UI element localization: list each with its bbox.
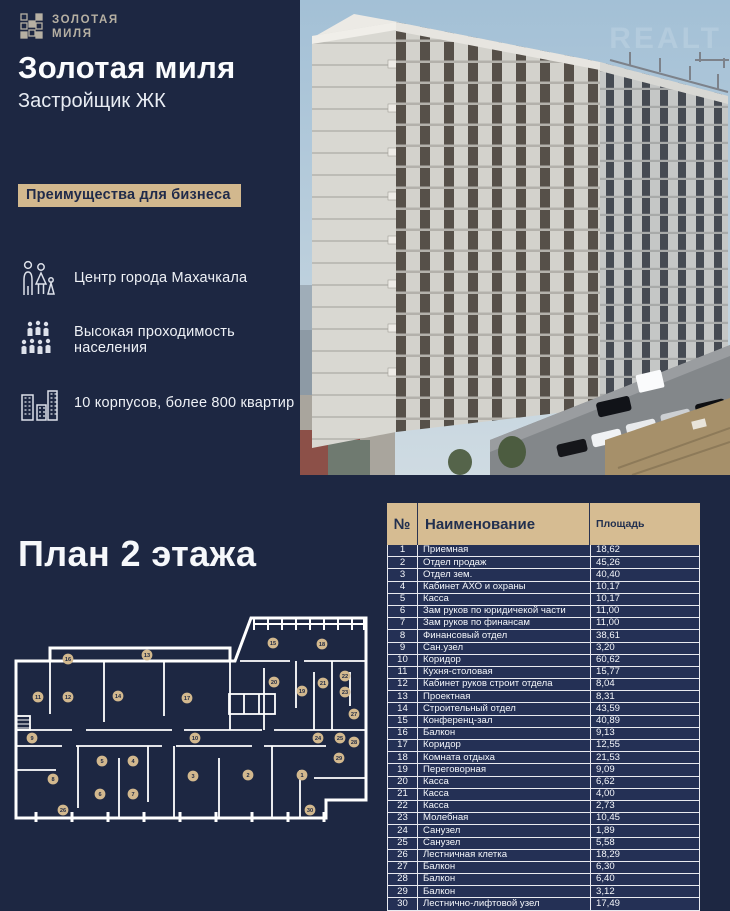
c-name: Комната отдыха	[418, 752, 591, 763]
c-name: Санузел	[418, 825, 591, 836]
floor-plan: 1613151811121417201921222391024252728298…	[14, 610, 370, 826]
c-area: 10,17	[591, 594, 699, 605]
table-row: 7Зам руков по финансам11,00	[387, 618, 700, 630]
c-num: 21	[388, 789, 418, 800]
c-area: 6,62	[591, 777, 699, 788]
room-marker-number: 7	[131, 792, 134, 798]
logo-line2: МИЛЯ	[52, 27, 119, 41]
table-row: 30Лестнично-лифтовой узел17,49	[387, 898, 700, 910]
mosaic-grid-icon	[20, 13, 44, 41]
room-marker-number: 14	[115, 694, 122, 700]
c-area: 38,61	[591, 630, 699, 641]
table-row: 29Балкон3,12	[387, 886, 700, 898]
room-marker-number: 30	[307, 808, 313, 814]
page-title: Золотая миля	[18, 50, 236, 86]
c-name: Касса	[418, 777, 591, 788]
c-num: 16	[388, 728, 418, 739]
feature-city-center: Центр города Махачкала	[20, 258, 247, 298]
room-marker-number: 13	[144, 653, 150, 659]
c-area: 8,31	[591, 691, 699, 702]
logo-line1: ЗОЛОТАЯ	[52, 13, 119, 27]
table-row: 18Комната отдыха21,53	[387, 752, 700, 764]
c-num: 5	[388, 594, 418, 605]
room-marker-number: 2	[246, 773, 249, 779]
c-area: 9,13	[591, 728, 699, 739]
table-row: 28Балкон6,40	[387, 874, 700, 886]
c-num: 25	[388, 838, 418, 849]
room-marker-number: 11	[35, 695, 41, 701]
buildings-icon	[20, 383, 58, 423]
room-marker-number: 24	[315, 736, 322, 742]
table-row: 27Балкон6,30	[387, 862, 700, 874]
c-name: Кабинет АХО и охраны	[418, 582, 591, 593]
c-area: 3,20	[591, 643, 699, 654]
feature-label: Высокая проходимость населения	[74, 324, 300, 356]
c-area: 43,59	[591, 703, 699, 714]
room-marker-number: 17	[184, 696, 190, 702]
c-num: 2	[388, 557, 418, 568]
c-num: 3	[388, 569, 418, 580]
c-name: Кабинет руков строит отдела	[418, 679, 591, 690]
c-name: Балкон	[418, 862, 591, 873]
building-photo-art	[300, 0, 730, 475]
c-num: 4	[388, 582, 418, 593]
c-area: 4,00	[591, 789, 699, 800]
c-num: 14	[388, 703, 418, 714]
table-row: 13Проектная8,31	[387, 691, 700, 703]
c-num: 30	[388, 898, 418, 909]
table-row: 19Переговорная9,09	[387, 764, 700, 776]
c-num: 20	[388, 777, 418, 788]
room-marker-number: 27	[351, 712, 357, 718]
c-area: 6,40	[591, 874, 699, 885]
room-marker-number: 19	[299, 689, 305, 695]
room-marker-number: 10	[192, 736, 198, 742]
table-row: 2Отдел продаж45,26	[387, 557, 700, 569]
table-row: 26Лестничная клетка18,29	[387, 850, 700, 862]
table-row: 10Коридор60,62	[387, 655, 700, 667]
room-marker-number: 22	[342, 674, 348, 680]
c-num: 1	[388, 545, 418, 556]
room-marker-number: 25	[337, 736, 343, 742]
col-name-header: Наименование	[418, 503, 590, 545]
c-name: Зам руков по финансам	[418, 618, 591, 629]
c-num: 22	[388, 801, 418, 812]
room-marker-number: 23	[342, 690, 348, 696]
feature-buildings: 10 корпусов, более 800 квартир	[20, 383, 294, 423]
room-marker-number: 1	[300, 773, 303, 779]
col-number-header: №	[387, 503, 418, 545]
room-marker-number: 21	[320, 681, 326, 687]
c-num: 28	[388, 874, 418, 885]
c-num: 12	[388, 679, 418, 690]
c-name: Лестнично-лифтовой узел	[418, 898, 591, 909]
family-icon	[20, 258, 58, 298]
table-row: 20Касса6,62	[387, 777, 700, 789]
c-num: 10	[388, 655, 418, 666]
c-name: Приемная	[418, 545, 591, 556]
table-row: 21Касса4,00	[387, 789, 700, 801]
logo: ЗОЛОТАЯ МИЛЯ	[20, 13, 119, 42]
c-name: Финансовый отдел	[418, 630, 591, 641]
c-name: Коридор	[418, 655, 591, 666]
c-num: 19	[388, 764, 418, 775]
c-num: 26	[388, 850, 418, 861]
benefits-badge: Преимущества для бизнеса	[18, 184, 241, 207]
room-marker-number: 20	[271, 680, 277, 686]
c-area: 1,89	[591, 825, 699, 836]
c-num: 11	[388, 667, 418, 678]
table-row: 4Кабинет АХО и охраны10,17	[387, 582, 700, 594]
c-name: Отдел зем.	[418, 569, 591, 580]
table-body: 1Приемная18,622Отдел продаж45,263Отдел з…	[387, 545, 700, 911]
table-row: 14Строительный отдел43,59	[387, 703, 700, 715]
c-area: 45,26	[591, 557, 699, 568]
c-num: 9	[388, 643, 418, 654]
room-marker-number: 29	[336, 756, 342, 762]
c-name: Отдел продаж	[418, 557, 591, 568]
table-row: 9Сан.узел3,20	[387, 643, 700, 655]
table-row: 12Кабинет руков строит отдела8,04	[387, 679, 700, 691]
c-name: Коридор	[418, 740, 591, 751]
c-num: 15	[388, 716, 418, 727]
c-num: 18	[388, 752, 418, 763]
room-area-table: № Наименование Площадь 1Приемная18,622От…	[387, 503, 700, 911]
page-subtitle: Застройщик ЖК	[18, 90, 166, 113]
c-area: 60,62	[591, 655, 699, 666]
table-row: 25Санузел5,58	[387, 838, 700, 850]
photo-watermark: REALT	[609, 22, 722, 56]
c-name: Переговорная	[418, 764, 591, 775]
table-row: 23Молебная10,45	[387, 813, 700, 825]
c-area: 18,62	[591, 545, 699, 556]
table-row: 8Финансовый отдел38,61	[387, 630, 700, 642]
c-name: Касса	[418, 594, 591, 605]
table-row: 24Санузел1,89	[387, 825, 700, 837]
c-area: 10,17	[591, 582, 699, 593]
c-name: Сан.узел	[418, 643, 591, 654]
c-area: 40,89	[591, 716, 699, 727]
brand-panel: ЗОЛОТАЯ МИЛЯ Золотая миля Застройщик ЖК …	[0, 0, 300, 475]
room-marker-number: 9	[30, 736, 33, 742]
table-row: 6Зам руков по юридичекой части11,00	[387, 606, 700, 618]
c-num: 27	[388, 862, 418, 873]
c-name: Лестничная клетка	[418, 850, 591, 861]
c-name: Касса	[418, 801, 591, 812]
c-num: 8	[388, 630, 418, 641]
room-marker-number: 3	[191, 774, 194, 780]
c-name: Санузел	[418, 838, 591, 849]
table-row: 3Отдел зем.40,40	[387, 569, 700, 581]
c-name: Строительный отдел	[418, 703, 591, 714]
c-area: 2,73	[591, 801, 699, 812]
c-num: 29	[388, 886, 418, 897]
c-area: 40,40	[591, 569, 699, 580]
table-row: 1Приемная18,62	[387, 545, 700, 557]
c-area: 21,53	[591, 752, 699, 763]
c-num: 6	[388, 606, 418, 617]
room-marker-number: 26	[60, 808, 66, 814]
table-row: 5Касса10,17	[387, 594, 700, 606]
c-name: Конференц-зал	[418, 716, 591, 727]
feature-foot-traffic: Высокая проходимость населения	[20, 320, 300, 360]
c-area: 11,00	[591, 606, 699, 617]
col-area-header: Площадь	[590, 503, 700, 545]
c-name: Балкон	[418, 874, 591, 885]
c-area: 17,49	[591, 898, 699, 909]
c-area: 6,30	[591, 862, 699, 873]
c-area: 11,00	[591, 618, 699, 629]
c-name: Кухня-столовая	[418, 667, 591, 678]
c-area: 8,04	[591, 679, 699, 690]
c-area: 18,29	[591, 850, 699, 861]
c-num: 23	[388, 813, 418, 824]
room-marker-number: 8	[51, 777, 54, 783]
c-name: Зам руков по юридичекой части	[418, 606, 591, 617]
c-num: 24	[388, 825, 418, 836]
table-row: 17Коридор12,55	[387, 740, 700, 752]
c-area: 15,77	[591, 667, 699, 678]
table-header: № Наименование Площадь	[387, 503, 700, 545]
c-name: Проектная	[418, 691, 591, 702]
c-area: 5,58	[591, 838, 699, 849]
table-row: 15Конференц-зал40,89	[387, 716, 700, 728]
crowd-icon	[20, 320, 58, 360]
room-marker-number: 12	[65, 695, 71, 701]
table-row: 16Балкон9,13	[387, 728, 700, 740]
c-name: Касса	[418, 789, 591, 800]
logo-text: ЗОЛОТАЯ МИЛЯ	[52, 13, 119, 42]
room-marker-number: 15	[270, 641, 276, 647]
c-area: 10,45	[591, 813, 699, 824]
c-area: 9,09	[591, 764, 699, 775]
building-photo: REALT	[300, 0, 730, 475]
feature-label: Центр города Махачкала	[74, 270, 247, 286]
room-marker-number: 28	[351, 740, 357, 746]
room-marker-number: 18	[319, 642, 325, 648]
c-name: Балкон	[418, 886, 591, 897]
room-marker-number: 5	[100, 759, 103, 765]
plan-markers: 1613151811121417201921222391024252728298…	[27, 638, 360, 816]
room-marker-number: 6	[98, 792, 101, 798]
c-name: Молебная	[418, 813, 591, 824]
c-num: 13	[388, 691, 418, 702]
feature-label: 10 корпусов, более 800 квартир	[74, 395, 294, 411]
plan-title: План 2 этажа	[18, 533, 256, 575]
c-area: 3,12	[591, 886, 699, 897]
c-num: 7	[388, 618, 418, 629]
c-name: Балкон	[418, 728, 591, 739]
room-marker-number: 16	[65, 657, 71, 663]
c-num: 17	[388, 740, 418, 751]
table-row: 22Касса2,73	[387, 801, 700, 813]
c-area: 12,55	[591, 740, 699, 751]
table-row: 11Кухня-столовая15,77	[387, 667, 700, 679]
